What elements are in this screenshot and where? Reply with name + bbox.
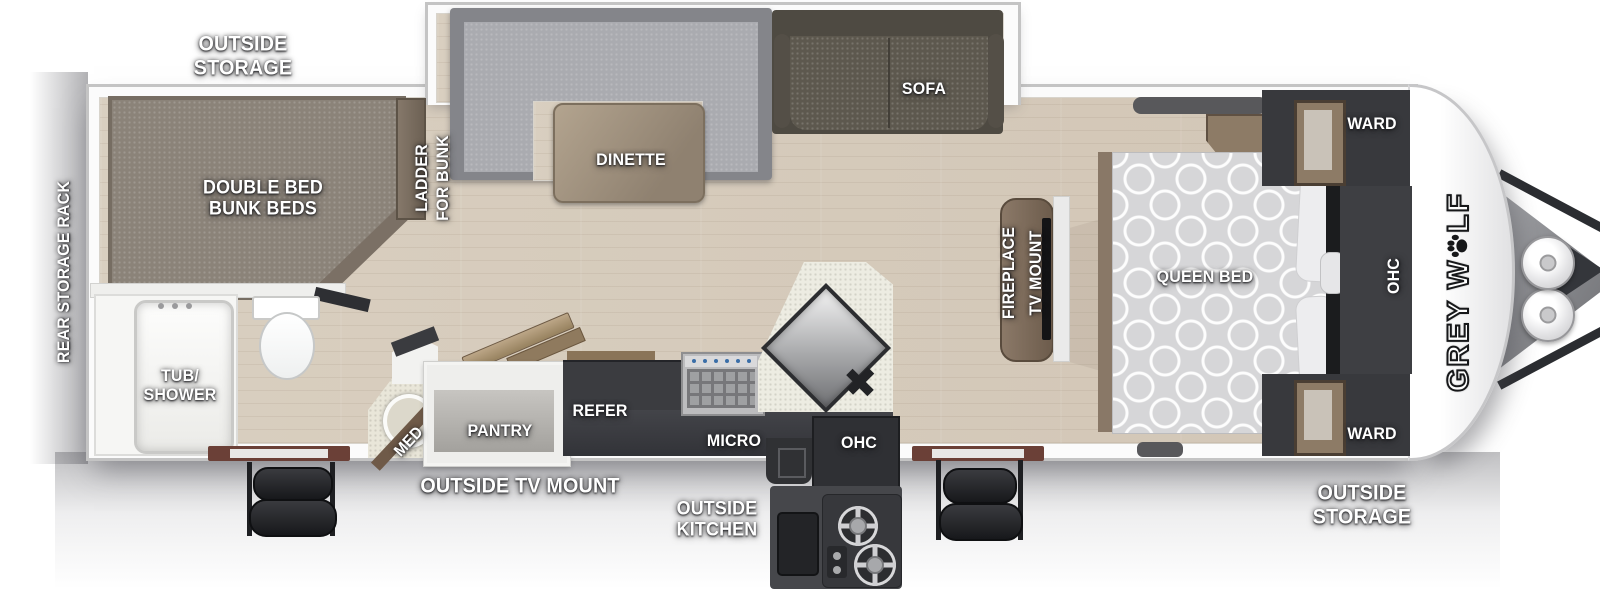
rear-door-opening bbox=[230, 449, 328, 458]
label-line: DOUBLE BED bbox=[203, 178, 323, 199]
label-line: OUTSIDE bbox=[677, 499, 758, 520]
entry-step bbox=[939, 503, 1023, 541]
main-door-opening bbox=[932, 449, 1024, 458]
propane-tank bbox=[1521, 236, 1575, 290]
cooktop-knobs bbox=[827, 546, 847, 578]
sofa-label: SOFA bbox=[902, 80, 946, 98]
label-line: BUNK BEDS bbox=[203, 199, 323, 220]
floorplan-canvas: OUTSIDE STORAGE REAR STORAGE RACK DOUBLE… bbox=[0, 0, 1600, 589]
label-line: FIREPLACE bbox=[995, 227, 1022, 319]
brand-text: GREY W bbox=[1442, 259, 1475, 392]
sofa-cushion-divider bbox=[888, 38, 890, 128]
bedroom-bench-small bbox=[1137, 442, 1183, 457]
entry-step bbox=[249, 499, 337, 537]
ladder-label: LADDER FOR BUNK bbox=[411, 135, 454, 221]
outside-kitchen-door bbox=[777, 512, 819, 576]
label-line: SHOWER bbox=[143, 385, 216, 404]
rear-storage-rack-label: REAR STORAGE RACK bbox=[55, 181, 73, 363]
bunk-bed-label: DOUBLE BED BUNK BEDS bbox=[203, 178, 323, 221]
sofa-armrest bbox=[988, 34, 1004, 128]
outside-kitchen-label: OUTSIDE KITCHEN bbox=[677, 499, 758, 542]
wardrobe-front-panel bbox=[1304, 390, 1332, 440]
label-line: OUTSIDE bbox=[194, 32, 293, 56]
label-line: STORAGE bbox=[1313, 505, 1412, 529]
sofa-armrest bbox=[774, 34, 790, 128]
queen-bed-label: QUEEN BED bbox=[1157, 268, 1254, 286]
fireplace-tv-label: FIREPLACE TV MOUNT bbox=[995, 227, 1049, 319]
ohc-kitchen-label: OHC bbox=[841, 434, 877, 452]
range-knobs-icon bbox=[692, 359, 696, 363]
paw-print-icon bbox=[1445, 233, 1471, 259]
tub-shower-label: TUB/ SHOWER bbox=[143, 366, 216, 404]
knob-icon bbox=[833, 552, 841, 560]
pantry-label: PANTRY bbox=[467, 422, 532, 440]
brand-logo: GREY WLF bbox=[1442, 192, 1476, 392]
microwave-label: MICRO bbox=[707, 432, 761, 450]
entry-step bbox=[253, 467, 333, 501]
outside-tv-mount-label: OUTSIDE TV MOUNT bbox=[420, 476, 619, 499]
entry-step bbox=[943, 468, 1017, 504]
burner-icon bbox=[854, 544, 896, 586]
label-line: OUTSIDE bbox=[1313, 481, 1412, 505]
partition-wall bbox=[1053, 196, 1070, 362]
bedroom-bench bbox=[1133, 97, 1267, 114]
ward-front-label: WARD bbox=[1347, 425, 1397, 443]
overhead-cabinet-kitchen bbox=[812, 416, 900, 494]
ohc-bedroom-label: OHC bbox=[1385, 258, 1403, 294]
outside-storage-front-label: OUTSIDE STORAGE bbox=[1313, 481, 1412, 528]
label-line: KITCHEN bbox=[677, 520, 758, 541]
brand-text: LF bbox=[1442, 192, 1475, 233]
label-line: FOR BUNK bbox=[432, 135, 453, 221]
toilet bbox=[259, 312, 315, 380]
label-line: TV MOUNT bbox=[1022, 227, 1049, 319]
faucet-icon bbox=[158, 303, 164, 309]
label-line: LADDER bbox=[411, 135, 432, 221]
outside-kitchen-sink bbox=[778, 448, 806, 478]
dinette-label: DINETTE bbox=[596, 151, 666, 169]
wardrobe-rear-panel bbox=[1304, 110, 1332, 170]
propane-tank bbox=[1521, 288, 1575, 342]
ward-rear-label: WARD bbox=[1347, 115, 1397, 133]
label-line: STORAGE bbox=[194, 56, 293, 80]
refrigerator-label: REFER bbox=[572, 402, 627, 420]
outside-storage-rear-label: OUTSIDE STORAGE bbox=[194, 32, 293, 79]
burner-icon bbox=[838, 506, 878, 546]
range-grate-icon bbox=[687, 369, 755, 408]
label-line: TUB/ bbox=[143, 366, 216, 385]
